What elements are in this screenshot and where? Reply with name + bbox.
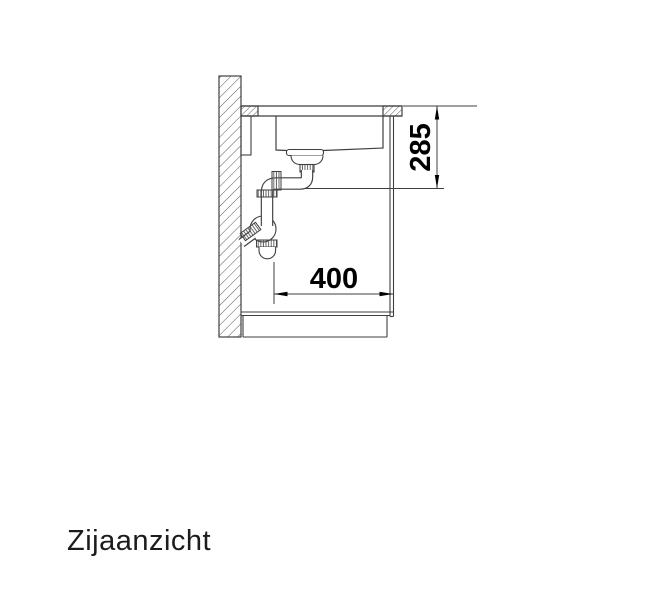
arrow-down-icon xyxy=(435,175,439,189)
arrow-right-icon xyxy=(380,292,394,296)
side-view-technical-drawing: 285 400 xyxy=(0,0,657,599)
arrow-left-icon xyxy=(274,292,288,296)
coupling-nut-elbow xyxy=(272,172,281,191)
view-title: Zijaanzicht xyxy=(67,525,211,558)
support-batten xyxy=(241,116,251,155)
cup-nut xyxy=(257,240,278,247)
countertop-cut-left xyxy=(241,106,258,116)
drain-strainer xyxy=(287,150,324,173)
plinth xyxy=(243,316,387,338)
trap-cup xyxy=(259,247,276,259)
countertop-cut-right xyxy=(383,106,402,116)
countertop xyxy=(241,106,402,116)
dimension-label-width: 400 xyxy=(310,263,358,295)
arrow-up-icon xyxy=(435,106,439,120)
cabinet-bottom xyxy=(241,312,394,316)
coupling-nut-downpipe xyxy=(257,190,277,197)
sink-basin xyxy=(276,116,383,151)
wall-section xyxy=(219,76,241,337)
dimension-label-height: 285 xyxy=(405,123,437,171)
cabinet-side-panel xyxy=(390,116,394,317)
